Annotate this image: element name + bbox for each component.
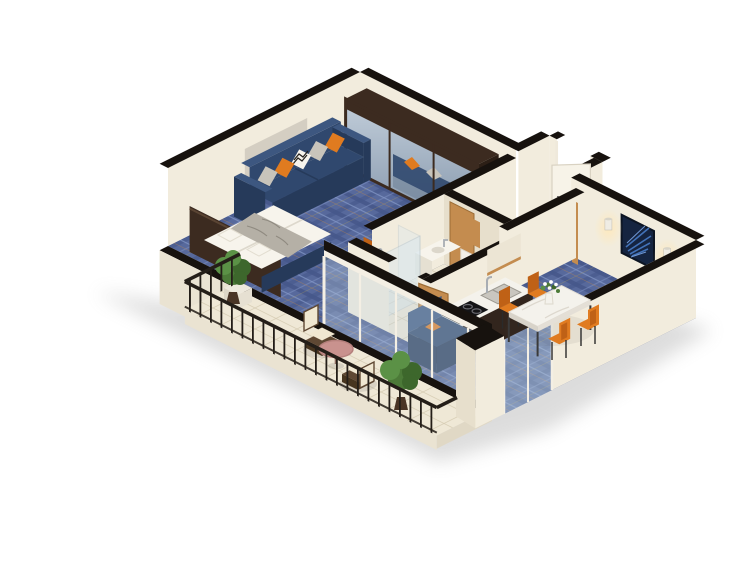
balcony-corner-pillar xyxy=(456,324,504,428)
wall-sconce-left xyxy=(594,209,622,247)
isometric-apartment-svg xyxy=(0,0,756,567)
floorplan-render xyxy=(0,0,756,567)
